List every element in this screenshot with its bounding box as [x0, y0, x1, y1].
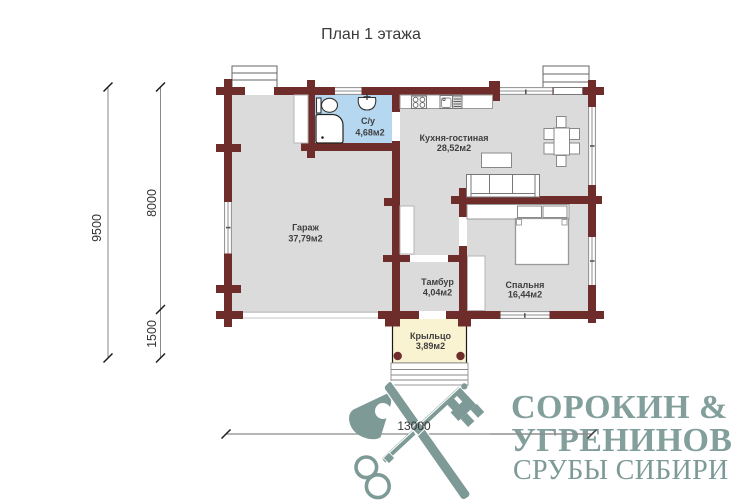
svg-text:СРУБЫ СИБИРИ: СРУБЫ СИБИРИ	[513, 455, 728, 486]
svg-text:Крыльцо: Крыльцо	[410, 331, 451, 341]
svg-text:С/у: С/у	[361, 116, 375, 126]
svg-text:1500: 1500	[145, 320, 159, 348]
svg-text:13000: 13000	[397, 419, 431, 433]
svg-text:8000: 8000	[145, 189, 159, 217]
svg-text:37,79м2: 37,79м2	[288, 234, 322, 244]
svg-text:Гараж: Гараж	[292, 223, 319, 233]
svg-text:3,89м2: 3,89м2	[416, 341, 445, 351]
svg-text:9500: 9500	[90, 214, 104, 242]
svg-text:СОРОКИН &: СОРОКИН &	[511, 389, 728, 426]
svg-text:4,68м2: 4,68м2	[355, 128, 384, 138]
svg-text:28,52м2: 28,52м2	[437, 143, 471, 153]
svg-text:УГРЕНИНОВ: УГРЕНИНОВ	[511, 422, 732, 459]
svg-text:Кухня-гостиная: Кухня-гостиная	[420, 133, 489, 143]
svg-text:4,04м2: 4,04м2	[423, 288, 452, 298]
svg-text:16,44м2: 16,44м2	[508, 290, 542, 300]
svg-text:План 1 этажа: План 1 этажа	[321, 26, 421, 43]
svg-text:Спальня: Спальня	[506, 280, 545, 290]
svg-text:Тамбур: Тамбур	[421, 277, 454, 287]
